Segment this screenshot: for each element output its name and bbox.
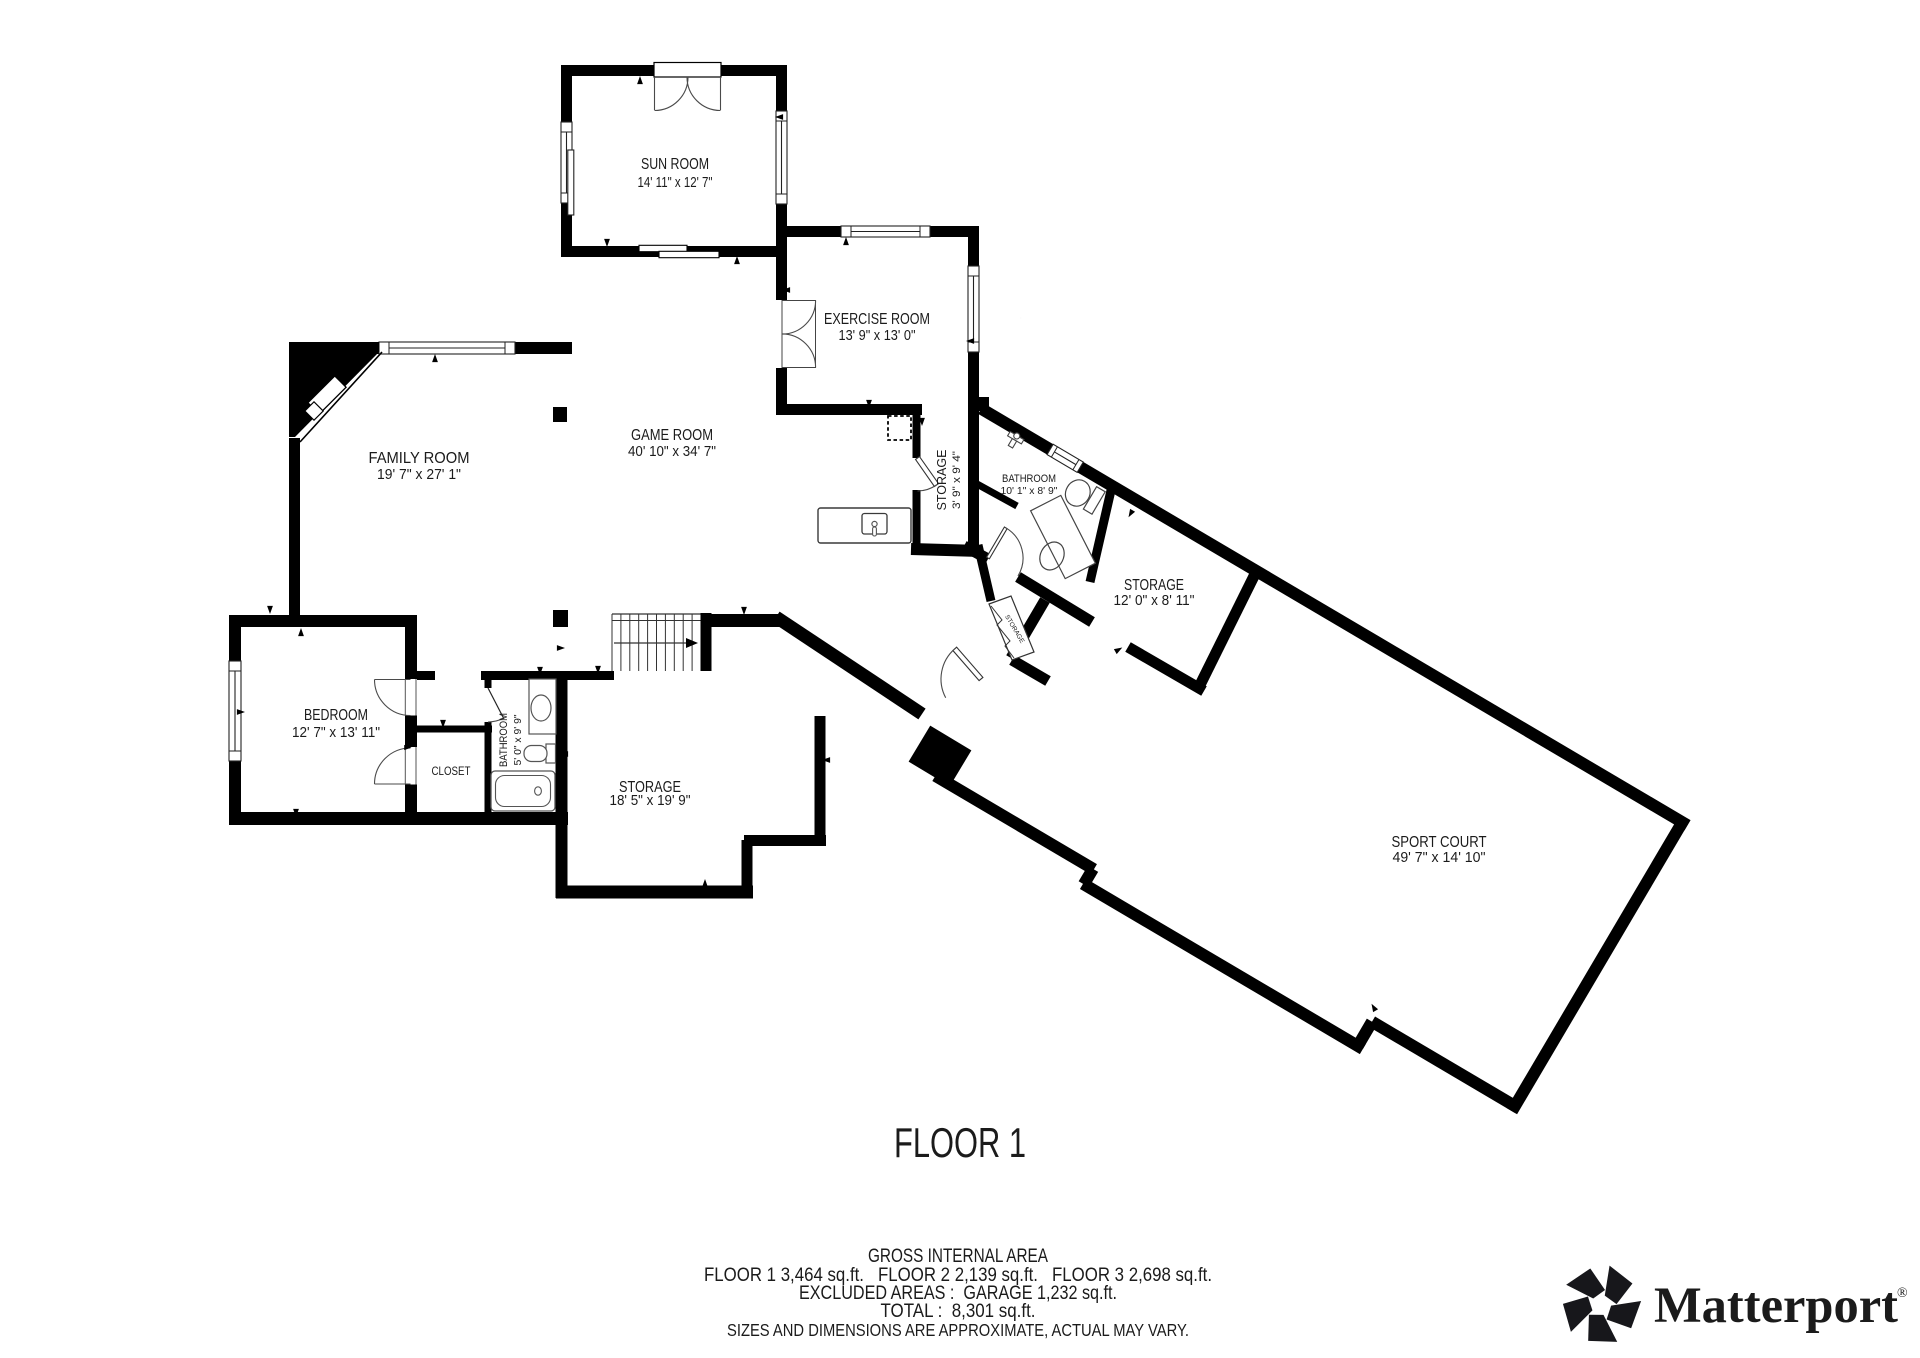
svg-text:12' 7" x 13' 11": 12' 7" x 13' 11" [292,725,380,741]
svg-text:BATHROOM: BATHROOM [1002,473,1056,485]
svg-text:40' 10" x 34' 7": 40' 10" x 34' 7" [628,444,716,460]
svg-text:STORAGE: STORAGE [1124,577,1184,594]
svg-text:SUN ROOM: SUN ROOM [641,156,709,173]
svg-text:BEDROOM: BEDROOM [304,707,368,724]
svg-text:49' 7" x 14' 10": 49' 7" x 14' 10" [1393,850,1486,866]
svg-text:EXERCISE ROOM: EXERCISE ROOM [824,311,930,328]
svg-text:Matterport: Matterport [1654,1278,1898,1334]
svg-text:GAME ROOM: GAME ROOM [631,427,713,444]
svg-text:12' 0" x 8' 11": 12' 0" x 8' 11" [1114,593,1195,609]
svg-text:SIZES AND DIMENSIONS ARE APPRO: SIZES AND DIMENSIONS ARE APPROXIMATE, AC… [727,1320,1189,1340]
svg-text:FAMILY ROOM: FAMILY ROOM [369,450,470,467]
svg-text:19' 7" x 27' 1": 19' 7" x 27' 1" [377,467,461,483]
svg-text:BATHROOM: BATHROOM [498,713,510,767]
svg-text:3' 9" x 9' 4": 3' 9" x 9' 4" [951,451,963,509]
svg-text:5' 0" x 9' 9": 5' 0" x 9' 9" [513,714,524,765]
svg-text:18' 5" x 19' 9": 18' 5" x 19' 9" [610,793,691,809]
svg-text:TOTAL : 8,301 sq.ft.: TOTAL : 8,301 sq.ft. [881,1300,1036,1322]
svg-text:CLOSET: CLOSET [432,764,472,778]
svg-text:FLOOR 1: FLOOR 1 [894,1119,1026,1166]
svg-text:SPORT COURT: SPORT COURT [1392,834,1487,851]
svg-text:®: ® [1897,1286,1908,1301]
svg-text:10' 1" x 8' 9": 10' 1" x 8' 9" [1001,486,1058,497]
svg-text:STORAGE: STORAGE [935,450,949,511]
svg-text:13' 9" x 13' 0": 13' 9" x 13' 0" [839,328,916,344]
svg-text:14' 11" x 12' 7": 14' 11" x 12' 7" [638,175,713,191]
